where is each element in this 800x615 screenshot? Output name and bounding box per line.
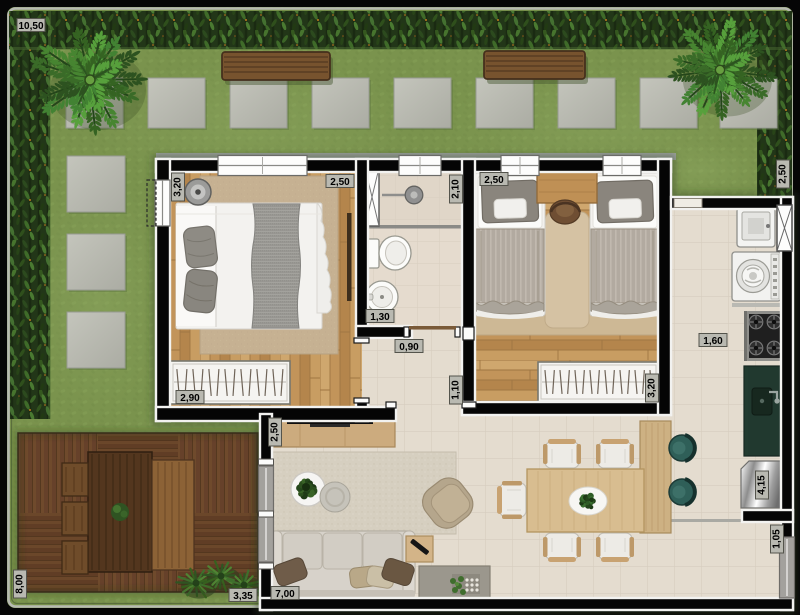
svg-text:3,35: 3,35: [233, 591, 253, 602]
svg-text:1,30: 1,30: [370, 312, 390, 323]
svg-text:2,50: 2,50: [484, 175, 504, 186]
svg-text:2,50: 2,50: [330, 177, 350, 188]
svg-text:4,15: 4,15: [757, 475, 768, 495]
svg-text:1,05: 1,05: [772, 529, 783, 549]
svg-text:1,10: 1,10: [451, 380, 462, 400]
svg-text:0,90: 0,90: [399, 342, 419, 353]
svg-text:8,00: 8,00: [15, 574, 26, 594]
svg-text:2,50: 2,50: [270, 422, 281, 442]
svg-text:3,20: 3,20: [647, 378, 658, 398]
svg-text:2,50: 2,50: [778, 164, 789, 184]
svg-text:2,90: 2,90: [180, 393, 200, 404]
svg-text:1,60: 1,60: [703, 336, 723, 347]
svg-text:2,10: 2,10: [451, 179, 462, 199]
svg-text:3,20: 3,20: [173, 177, 184, 197]
svg-text:7,00: 7,00: [275, 589, 295, 600]
svg-text:10,50: 10,50: [18, 21, 43, 32]
